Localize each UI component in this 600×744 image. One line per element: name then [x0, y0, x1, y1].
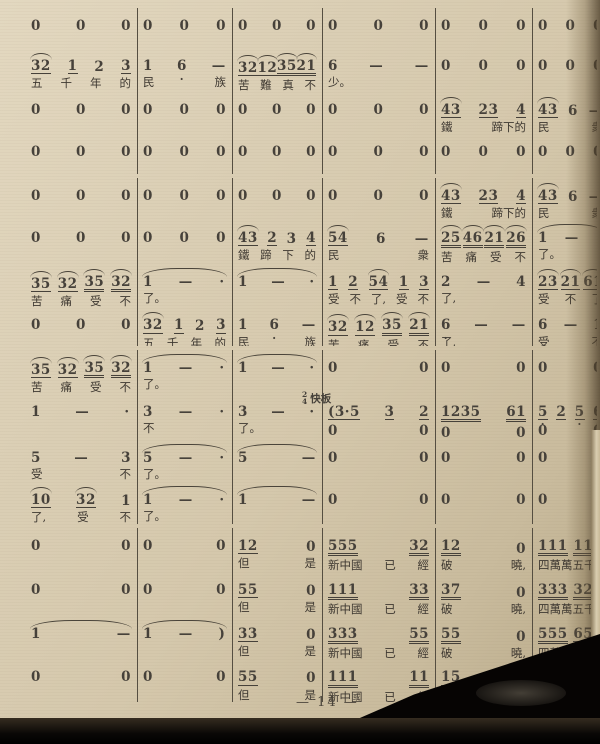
measure-cell: 000 — [137, 220, 232, 245]
notes-line: 120 — [441, 539, 526, 556]
note-token: 0 — [328, 493, 338, 507]
notes-line: 00 — [441, 493, 526, 507]
voice-row: 00000000000043234鐵蹄下的436—民衆 — [25, 92, 597, 134]
measure-cell: 1—·了。 — [137, 264, 232, 305]
note-token: — — [270, 361, 285, 375]
note-token: 32 — [111, 361, 131, 378]
note-token: 54 — [328, 231, 348, 246]
measure-cell: 00 — [137, 572, 232, 597]
lyric-line: 了。 — [143, 468, 226, 481]
note-token: · — [218, 405, 226, 419]
notes-line: 000 — [143, 19, 226, 33]
lyric-syllable: 了。 — [143, 378, 166, 391]
note-token: 61 — [506, 405, 526, 422]
measure-cell: 000 — [435, 48, 532, 73]
measure-cell: 32123521苦難真不 — [232, 48, 322, 92]
note-token: ) — [218, 627, 226, 641]
note-token: 0 — [374, 19, 384, 33]
note-token: 33 — [238, 627, 258, 642]
lyric-line: 鐵蹄下的 — [238, 249, 316, 262]
measure-cell: 1—· — [232, 264, 322, 289]
note-token: 3 — [419, 275, 429, 290]
lyric-syllable: 衆 — [418, 249, 430, 262]
measure-cell: 000 — [435, 134, 532, 159]
note-token: 0 — [216, 670, 226, 684]
lyric-syllable: 痛 — [466, 251, 478, 264]
lyric-syllable: 難 — [260, 79, 272, 92]
note-token: · — [308, 361, 316, 375]
note-token: 4 — [516, 275, 526, 289]
note-token: 0 — [121, 145, 131, 159]
notes-line: 000 — [328, 145, 429, 159]
note-token: 0 — [121, 189, 131, 203]
note-token: 35 — [277, 59, 297, 76]
measure-cell: 5— — [232, 440, 322, 465]
measure-cell: 12356100 — [435, 394, 532, 440]
notes-line: 000 — [143, 103, 226, 117]
lyric-syllable: 的 — [304, 249, 316, 262]
lyric-syllable: 是 — [305, 645, 317, 658]
note-token: 0 — [216, 19, 226, 33]
note-token: 0 — [238, 189, 248, 203]
notes-line: 2—4 — [441, 275, 526, 289]
note-token: 12 — [238, 539, 258, 554]
notes-line: 1—· — [238, 275, 316, 289]
measure-cell: 546—民衆 — [322, 220, 435, 262]
note-token: — — [414, 232, 429, 246]
voice-row: 00000043234鐵蹄下的546—民衆25462126苦痛受不1—·了。 — [25, 220, 597, 264]
note-token: 0 — [419, 424, 429, 438]
note-token: 0 — [538, 145, 548, 159]
measure-cell: 00 — [322, 440, 435, 465]
lyric-line: 苦痛受不 — [441, 251, 526, 264]
notes-line: 00 — [328, 451, 429, 465]
lyric-syllable: 經 — [418, 559, 430, 572]
notes-line: 00 — [328, 361, 429, 375]
note-token: 0 — [143, 583, 153, 597]
note-token: — — [178, 451, 193, 465]
voice-row: 000000000000000000 — [25, 8, 597, 48]
note-token: 1 — [238, 275, 248, 289]
note-token: 21 — [484, 231, 504, 248]
note-token: 0 — [306, 189, 316, 203]
measure-cell: 550破曉, — [435, 616, 532, 660]
measure-cell: 000 — [322, 178, 435, 203]
notes-line: 00 — [143, 583, 226, 597]
voice-row: 00032123五千年的16—民族32123521苦痛受不6——了,6—1受不 — [25, 307, 597, 346]
note-token: 0 — [516, 59, 526, 73]
lyric-line: 了, — [441, 292, 526, 305]
note-token: 0 — [538, 59, 548, 73]
note-token: 35 — [382, 318, 402, 335]
note-token: 0 — [31, 539, 41, 553]
notes-line: 000 — [143, 231, 226, 245]
note-token: 111 — [328, 670, 358, 687]
note-token: 0 — [419, 189, 429, 203]
note-token: 37 — [441, 583, 461, 600]
note-token: 0 — [272, 19, 282, 33]
note-token: 0 — [121, 583, 131, 597]
note-token: 0 — [516, 586, 526, 600]
lyric-syllable: 受 — [388, 339, 400, 346]
note-token: 0 — [374, 145, 384, 159]
note-token: 0 — [374, 103, 384, 117]
lyric-syllable: 破 — [441, 647, 453, 660]
note-token: 32 — [58, 277, 78, 292]
lyric-syllable: 鐵 — [238, 249, 250, 262]
note-token: 1 — [121, 494, 131, 508]
note-token: 23 — [479, 103, 499, 118]
notes-line: 000 — [238, 103, 316, 117]
note-token: 0 — [538, 493, 548, 507]
note-token: 35 — [31, 363, 51, 378]
voice-row: 000000000000000000 — [25, 134, 597, 174]
lyric-syllable: 五 — [143, 337, 155, 346]
note-token: 0 — [306, 628, 316, 642]
notes-line: 43234 — [238, 231, 316, 246]
note-token: 1235 — [441, 405, 481, 422]
note-token: 0 — [121, 103, 131, 117]
notes-line: 000 — [31, 103, 131, 117]
notes-line: 32123521 — [328, 318, 429, 335]
score-system: 00000000000000000032123五千年的16—民族32123521… — [13, 8, 597, 174]
note-token: 0 — [306, 540, 316, 554]
notes-line: 000 — [441, 59, 526, 73]
measure-cell: 6——了, — [435, 307, 532, 346]
note-token: 0 — [328, 103, 338, 117]
lyric-line: 了,受不 — [31, 511, 131, 524]
lyric-syllable: 苦 — [31, 381, 43, 394]
measure-cell: 32123五千年的 — [25, 48, 137, 90]
measure-cell: 32123五千年的 — [137, 307, 232, 346]
notes-line: 00 — [441, 451, 526, 465]
lyric-syllable: 受 — [490, 251, 502, 264]
measure-cell: 000 — [137, 92, 232, 117]
lyric-line: 新中國已經 — [328, 647, 429, 660]
measure-cell: 1— — [232, 482, 322, 507]
lyric-syllable: 鐵 — [441, 207, 453, 220]
note-token: 0 — [76, 189, 86, 203]
note-token: — — [74, 451, 89, 465]
lyric-syllable: 千 — [61, 77, 73, 90]
measure-cell: 1—·了。 — [137, 350, 232, 391]
measure-cell: 000 — [322, 92, 435, 117]
lyric-syllable: 新中國 — [328, 559, 363, 572]
notes-line: 125413 — [328, 275, 429, 290]
notes-line: 370 — [441, 583, 526, 600]
note-token: 43 — [441, 103, 461, 118]
lyric-line: 但是 — [238, 645, 316, 658]
system-measures: 00000000000000000032123五千年的16—民族32123521… — [25, 8, 597, 174]
measure-cell: 16—民族 — [232, 307, 322, 346]
measure-cell: 3—·不 — [137, 394, 232, 435]
lyric-line: 民衆 — [328, 249, 429, 262]
note-token: 23 — [479, 189, 499, 204]
measure-cell: 33355新中國已經 — [322, 616, 435, 660]
notes-line: 55532 — [328, 539, 429, 556]
note-token: · — [218, 275, 226, 289]
note-token: — — [476, 275, 491, 289]
lyric-syllable: 的 — [120, 77, 132, 90]
note-token: 43 — [538, 189, 558, 204]
measure-cell: 550但是 — [232, 572, 322, 614]
measure-cell: 25462126苦痛受不 — [435, 220, 532, 264]
lyric-syllable: 民 — [538, 121, 550, 134]
note-token: 4 — [306, 231, 316, 246]
measure-cell: 000 — [25, 220, 137, 245]
notes-line: 000 — [328, 103, 429, 117]
measure-cell: 330但是 — [232, 616, 322, 658]
note-token: — — [270, 405, 285, 419]
voice-row: 5—3受不5—·了。5—000000 — [25, 440, 597, 482]
note-token: 32 — [111, 275, 131, 292]
note-token: 0 — [31, 318, 41, 332]
note-token: 555 — [328, 539, 358, 556]
note-token: · — [308, 275, 316, 289]
notes-line: 5— — [238, 451, 316, 465]
note-token: 0 — [180, 189, 190, 203]
note-token: 0 — [374, 189, 384, 203]
note-token: 1 — [238, 493, 248, 507]
note-token: 0 — [216, 189, 226, 203]
measure-cell: 00 — [137, 659, 232, 684]
measure-cell: 000 — [25, 134, 137, 159]
notes-line: 000 — [238, 189, 316, 203]
note-token: 35 — [31, 277, 51, 292]
lyric-syllable: 痛 — [358, 339, 370, 346]
notes-line: 32123 — [31, 59, 131, 74]
measure-cell: 1—· — [25, 394, 137, 419]
lyric-line: 破曉, — [441, 603, 526, 616]
note-token: 0 — [516, 361, 526, 375]
lyric-syllable: 苦 — [238, 79, 250, 92]
note-token: 21 — [297, 59, 317, 76]
lyric-line: 苦痛受不 — [328, 339, 429, 346]
note-token: 4 — [516, 189, 526, 204]
lyric-syllable: 的 — [214, 337, 226, 346]
lyric-syllable: 是 — [305, 601, 317, 614]
measure-cell: 10321了,受不 — [25, 482, 137, 524]
lyric-syllable: 不 — [120, 295, 132, 308]
notes-line: 3—· — [238, 405, 316, 419]
note-token: 0 — [516, 493, 526, 507]
notes-line: 3—· — [143, 405, 226, 419]
voice-row: 35323532苦痛受不1—·了。1—·125413受不了,受不2—4了,232… — [25, 264, 597, 308]
lyric-syllable: 經 — [418, 603, 430, 616]
note-token: 4 — [516, 103, 526, 118]
note-token: — — [473, 318, 488, 332]
lyric-syllable: 但 — [238, 689, 250, 702]
notes-line: 10321 — [31, 493, 131, 508]
note-token: 0 — [31, 19, 41, 33]
note-token: 0 — [31, 583, 41, 597]
score-system: 35323532苦痛受不1—·了。1—·0000001—·3—·不3—·了。24… — [13, 350, 597, 524]
lyric-syllable: 了, — [441, 292, 456, 305]
measure-cell: 16—民族 — [137, 48, 232, 89]
lyric-line: 了, — [441, 336, 526, 346]
lyric-line: 五千年的 — [31, 77, 131, 90]
lyric-syllable: 曉, — [511, 559, 526, 572]
note-token: 0 — [238, 19, 248, 33]
lyric-syllable: 但 — [238, 601, 250, 614]
lyric-syllable: 了。 — [143, 292, 166, 305]
measure-cell: 11133新中國已經 — [322, 572, 435, 616]
measure-cell: 000 — [25, 178, 137, 203]
note-token: 0 — [121, 231, 131, 245]
note-token: 0 — [479, 19, 489, 33]
lyric-syllable: 痛 — [61, 295, 73, 308]
note-token: — — [511, 318, 526, 332]
note-token: 3 — [216, 318, 226, 333]
note-token: — — [178, 361, 193, 375]
measure-cell: 000 — [435, 8, 532, 33]
note-token: 0 — [216, 539, 226, 553]
lyric-syllable: 受 — [538, 293, 550, 306]
measure-cell: 000 — [25, 92, 137, 117]
note-token: 11 — [409, 670, 429, 687]
note-token: — — [414, 59, 429, 73]
lyric-line: 鐵蹄下的 — [441, 121, 526, 134]
measure-cell: 1—) — [137, 616, 232, 641]
lyric-syllable: 族 — [215, 76, 227, 89]
photo-glare — [476, 680, 566, 706]
note-token: 0 — [31, 231, 41, 245]
measure-cell: 00 — [435, 482, 532, 507]
photo-dark-bottom-edge — [0, 718, 600, 744]
note-token: 0 — [328, 361, 338, 375]
measure-cell: 00 — [322, 482, 435, 507]
measure-cell: 00 — [322, 350, 435, 375]
notes-line: 1— — [238, 493, 316, 507]
note-token: — — [368, 59, 383, 73]
note-token: 0 — [272, 189, 282, 203]
note-token: 0 — [516, 145, 526, 159]
note-token: 6 — [376, 232, 386, 246]
note-token: 2 — [348, 275, 358, 290]
note-token: 32 — [58, 363, 78, 378]
note-token: 0 — [180, 19, 190, 33]
notes-line: 00 — [31, 583, 131, 597]
lyric-syllable: 蹄 — [260, 249, 272, 262]
note-token: 0 — [31, 145, 41, 159]
lyric-syllable: 新中國 — [328, 647, 363, 660]
note-token: 0 — [180, 231, 190, 245]
note-token: 0 — [419, 19, 429, 33]
lyric-line: 新中國已經 — [328, 603, 429, 616]
notes-line: 00 — [31, 539, 131, 553]
note-token: 0 — [419, 451, 429, 465]
note-token: 0 — [538, 424, 548, 438]
note-token: 32 — [31, 59, 51, 74]
measure-cell: 000 — [137, 134, 232, 159]
measure-cell: 125413受不了,受不 — [322, 264, 435, 306]
measure-cell: 43234鐵蹄下的 — [435, 178, 532, 220]
photographed-score-page: { "page": { "number_label": "— 14 —" }, … — [0, 0, 600, 744]
lyric-syllable: 曉, — [511, 603, 526, 616]
note-token: 0 — [441, 493, 451, 507]
notes-line: 000 — [328, 19, 429, 33]
note-token: 1 — [31, 405, 41, 419]
note-token: 33 — [409, 583, 429, 600]
measure-cell: 000 — [232, 178, 322, 203]
notes-line: 123561 — [441, 405, 526, 422]
note-token: 0 — [441, 361, 451, 375]
note-token: 0 — [216, 145, 226, 159]
measure-cell: 000 — [232, 92, 322, 117]
notes-line: 6—— — [328, 59, 429, 73]
note-token: 35 — [84, 361, 104, 378]
note-token: 32 — [409, 539, 429, 556]
measure-cell: 000 — [137, 8, 232, 33]
measure-cell: 370破曉, — [435, 572, 532, 616]
lyric-syllable: 下 — [282, 249, 294, 262]
note-token: 2 — [267, 231, 277, 246]
note-token: — — [211, 59, 226, 73]
lyric-syllable: 五 — [31, 77, 43, 90]
note-token: 0 — [306, 19, 316, 33]
measure-cell: 00 — [435, 440, 532, 465]
measure-cell: 00 — [25, 659, 137, 684]
notes-line: 32123521 — [238, 59, 316, 76]
measure-cell: 32123521苦痛受不 — [322, 307, 435, 346]
note-token: · — [123, 405, 131, 419]
note-token: 12 — [258, 61, 278, 76]
measure-cell: 00 — [137, 528, 232, 553]
lyric-line: 破曉, — [441, 559, 526, 572]
note-token: 1 — [143, 275, 153, 289]
lyric-line: 鐵蹄下的 — [441, 207, 526, 220]
note-token: 1 — [399, 275, 409, 290]
lyric-syllable: 破 — [441, 559, 453, 572]
lyric-syllable: 苦 — [441, 251, 453, 264]
note-token: 5 — [143, 451, 153, 465]
notes-line: 000 — [31, 189, 131, 203]
note-token: 6 — [538, 318, 548, 332]
note-token: — — [270, 275, 285, 289]
lyric-syllable: 苦 — [328, 339, 340, 346]
lyric-syllable: 受 — [90, 381, 102, 394]
notes-line: 00 — [31, 670, 131, 684]
lyric-syllable: 已 — [384, 559, 396, 572]
note-token: 0 — [76, 19, 86, 33]
voice-row: 0000550但是11133新中國已經370破曉,333322四萬萬五千萬 — [25, 572, 597, 616]
lyric-syllable: 新中國 — [328, 603, 363, 616]
note-token: 0 — [516, 426, 526, 440]
note-token: 111 — [538, 539, 568, 556]
note-token: 0 — [419, 493, 429, 507]
notes-line: 16— — [238, 318, 316, 332]
notes-line: 550 — [441, 627, 526, 644]
note-token: 0 — [441, 451, 451, 465]
notes-line: 000 — [31, 231, 131, 245]
lyric-syllable: 年 — [90, 77, 102, 90]
note-token: 55 — [441, 627, 461, 644]
notes-line: 43234 — [441, 189, 526, 204]
notes-line: 1—· — [31, 405, 131, 419]
notes-line: 33355 — [328, 627, 429, 644]
note-token: 5 — [238, 451, 248, 465]
note-token: 0 — [538, 19, 548, 33]
note-token: 12 — [441, 539, 461, 556]
note-token: 0 — [238, 103, 248, 117]
lyric-line: 少。 — [328, 76, 429, 89]
voice-row: 1—1—)330但是33355新中國已經550破曉,555654四萬萬五千萬 — [25, 616, 597, 660]
note-token: 0 — [143, 231, 153, 245]
note-token: 0 — [31, 103, 41, 117]
note-token: 32 — [143, 318, 163, 333]
note-token: 1 — [238, 318, 248, 332]
notes-line: 000 — [31, 19, 131, 33]
